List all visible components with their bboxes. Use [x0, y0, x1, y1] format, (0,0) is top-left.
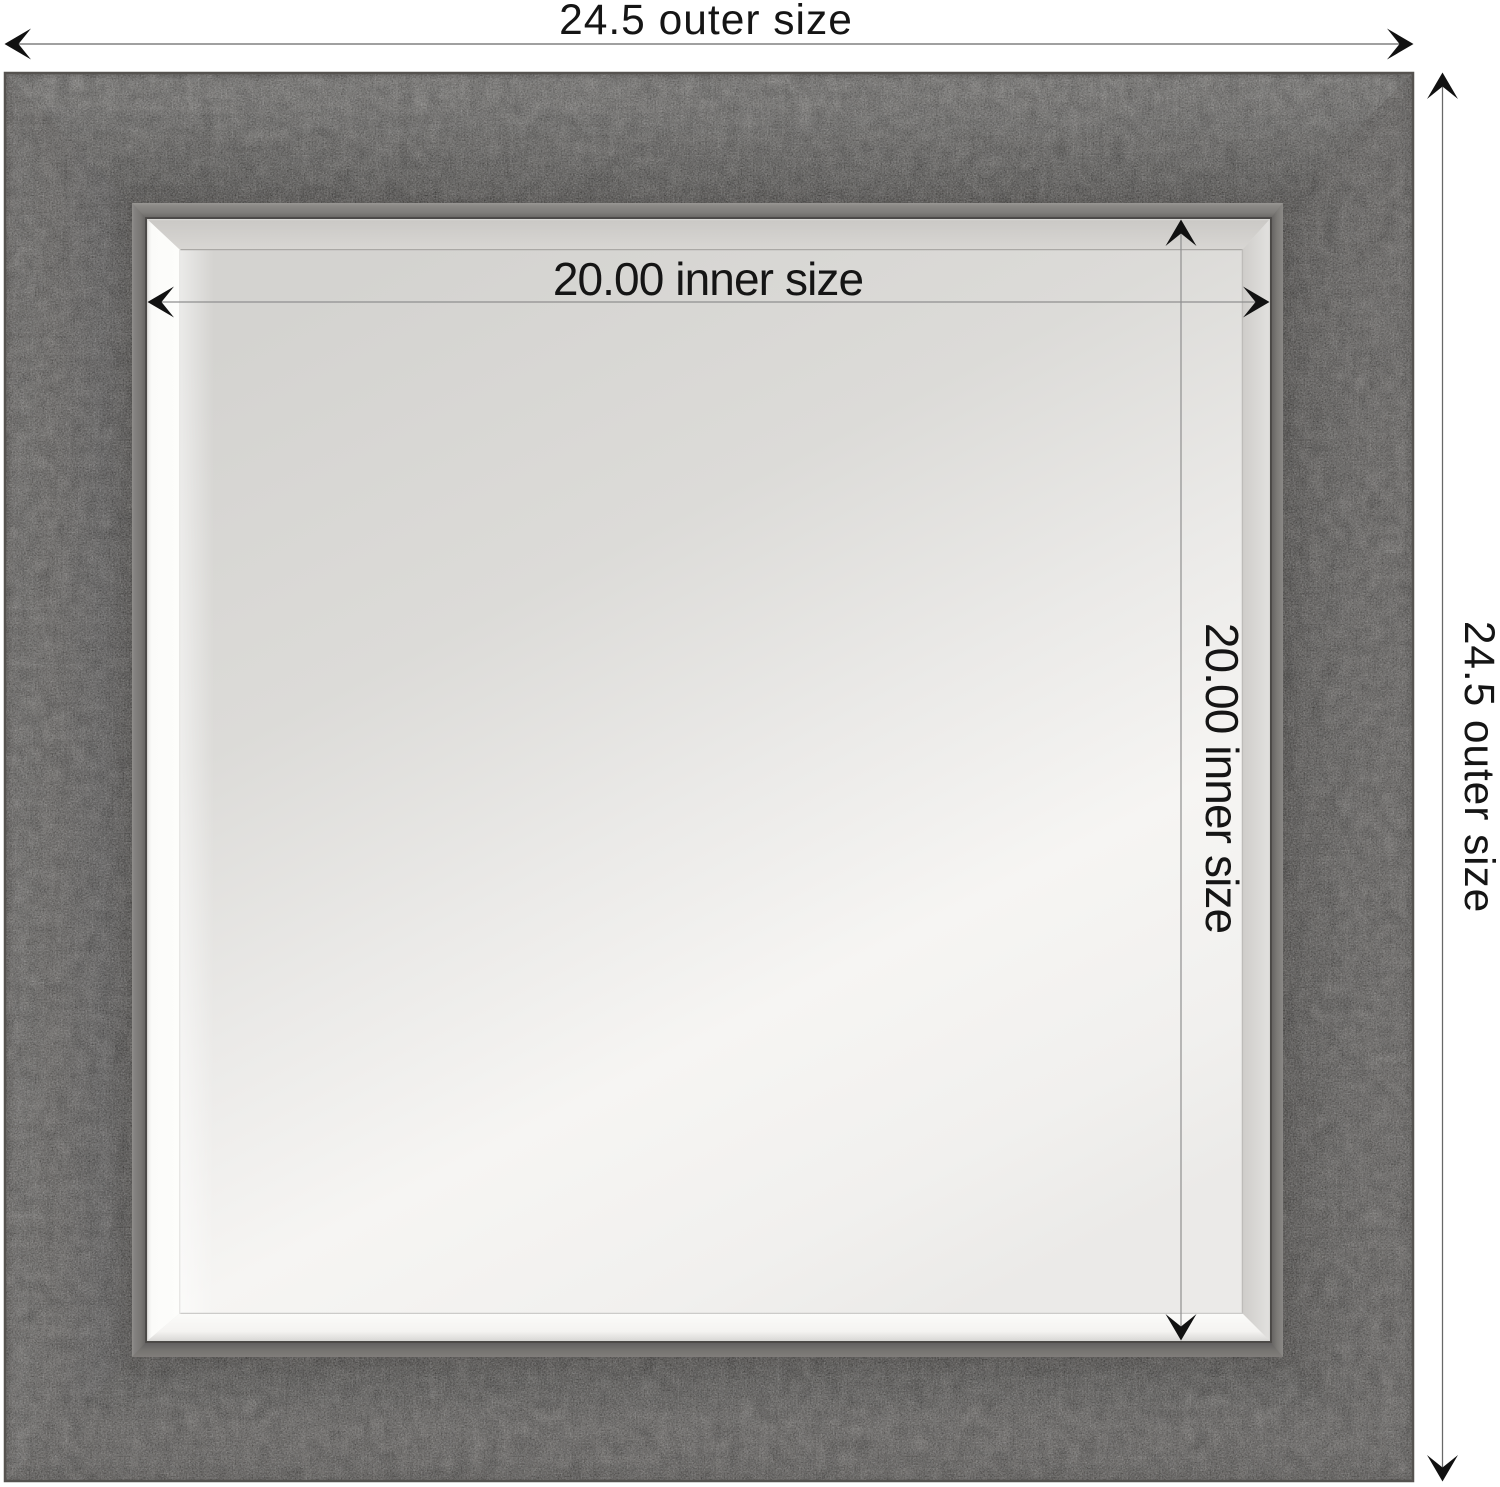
svg-text:20.00 inner size: 20.00 inner size	[553, 253, 863, 305]
svg-text:24.5 outer size: 24.5 outer size	[1455, 621, 1500, 913]
svg-text:24.5 outer size: 24.5 outer size	[559, 0, 853, 44]
svg-text:20.00 inner size: 20.00 inner size	[1196, 623, 1248, 933]
